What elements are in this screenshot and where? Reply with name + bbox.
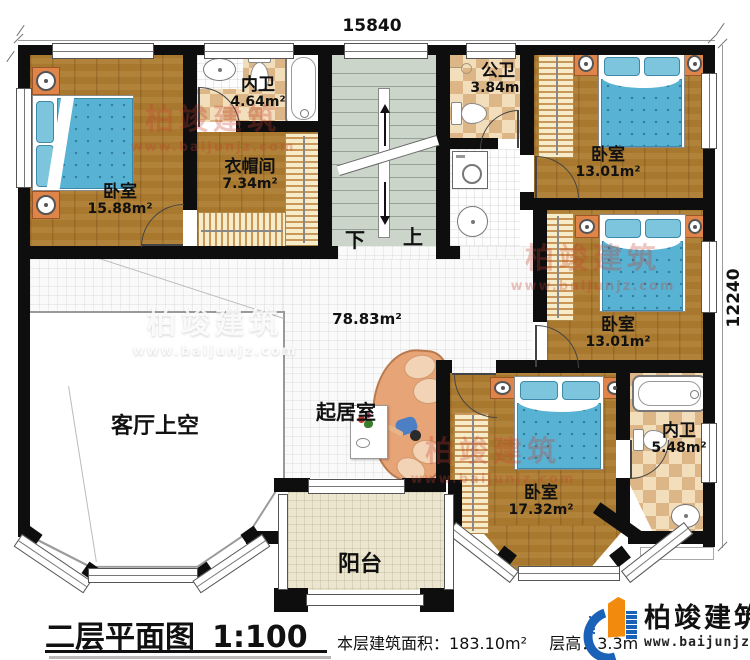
room-name: 卧室 xyxy=(576,316,660,335)
dimension-line-right xyxy=(722,45,723,548)
dimension-top-value: 15840 xyxy=(330,16,414,36)
pillow xyxy=(604,57,640,76)
wardrobe-rack xyxy=(538,50,574,158)
balcony-pillar xyxy=(274,478,310,492)
door-leaf xyxy=(452,373,496,375)
door-leaf xyxy=(630,440,632,478)
balcony-sliding-door xyxy=(308,479,405,494)
bathtub xyxy=(632,375,707,412)
living-void-label: 客厅上空 xyxy=(100,408,210,440)
room-label-bath1: 内卫 4.64m² xyxy=(222,76,294,111)
stair-arrow-up-icon xyxy=(380,104,390,113)
wall xyxy=(533,210,547,322)
nightstand xyxy=(32,191,60,219)
person-head xyxy=(410,430,421,441)
bed xyxy=(514,376,604,470)
window xyxy=(52,43,154,59)
dimension-tick xyxy=(708,34,718,44)
logo-orange-tower xyxy=(608,596,625,637)
brand-text: 柏竣建筑 www.baijunjz.com xyxy=(644,596,750,650)
door-leaf xyxy=(198,87,200,127)
blanket xyxy=(517,403,601,469)
room-area: 7.34m² xyxy=(205,177,295,193)
balcony-railing xyxy=(278,494,288,590)
wall-wedge xyxy=(609,546,631,568)
room-area: 4.64m² xyxy=(222,95,294,111)
floor-plan: 柏竣建筑 www.baijunjz.com xyxy=(0,0,750,660)
nightstand xyxy=(32,67,60,95)
pillow xyxy=(605,219,641,238)
wall xyxy=(436,246,460,259)
laundry-sink xyxy=(457,206,488,237)
door-leaf xyxy=(535,156,537,198)
blanket xyxy=(601,79,682,147)
pillow xyxy=(520,381,558,400)
window xyxy=(204,43,294,59)
bay-window xyxy=(88,568,198,583)
bed xyxy=(32,95,134,191)
stair-arrow-stem xyxy=(384,182,386,216)
window xyxy=(344,43,428,59)
wall xyxy=(18,246,197,259)
stats-area-value: 183.10m² xyxy=(449,634,527,653)
room-label-public-bath: 公卫 3.84m² xyxy=(460,62,536,97)
corner-break-mark xyxy=(716,23,724,34)
room-label-bedroom2: 卧室 13.01m² xyxy=(566,146,650,181)
window xyxy=(701,241,717,313)
title-underline xyxy=(45,650,327,653)
room-name: 卧室 xyxy=(70,183,170,202)
stats-area-label: 本层建筑面积： xyxy=(337,634,449,653)
window xyxy=(701,73,717,149)
dimension-line-top xyxy=(18,40,715,41)
room-label-bedroom3: 卧室 13.01m² xyxy=(576,316,660,351)
stair-arrow-stem xyxy=(384,112,386,146)
room-name: 内卫 xyxy=(222,76,294,95)
title-block: 二层平面图 1:100 xyxy=(45,612,345,648)
blanket xyxy=(602,241,683,311)
balcony-railing xyxy=(306,594,424,606)
toilet xyxy=(451,100,489,127)
stairs-down-label: 下 xyxy=(340,224,370,253)
wall xyxy=(496,360,715,373)
wall xyxy=(520,198,715,210)
room-name: 内卫 xyxy=(648,422,710,441)
stair-arrow-down-icon xyxy=(380,216,390,225)
brand-name: 柏竣建筑 xyxy=(644,596,750,635)
room-name: 卧室 xyxy=(496,484,586,503)
balcony-pillar xyxy=(402,478,446,492)
logo-blue-tower xyxy=(626,611,637,639)
bay-window xyxy=(518,566,620,581)
stairs-up-label: 上 xyxy=(398,221,428,250)
door-leaf xyxy=(517,110,519,148)
bed xyxy=(598,52,685,148)
hall-area-label: 78.83m² xyxy=(322,310,412,328)
hall-floor xyxy=(460,246,533,259)
room-area: 13.01m² xyxy=(576,335,660,351)
dimension-right-value: 12240 xyxy=(724,256,744,340)
nightstand xyxy=(575,215,599,238)
room-label-bedroom4: 卧室 17.32m² xyxy=(496,484,586,519)
door-leaf xyxy=(141,244,183,246)
wardrobe-rack xyxy=(198,212,286,247)
window xyxy=(466,43,516,59)
pillow xyxy=(36,101,54,143)
pillow xyxy=(644,57,680,76)
pillow xyxy=(645,219,681,238)
room-label-cloakroom: 衣帽间 7.34m² xyxy=(205,158,295,193)
balcony-pillar xyxy=(420,588,454,612)
room-area: 15.88m² xyxy=(70,202,170,218)
washing-machine xyxy=(452,151,488,189)
balcony-railing xyxy=(444,494,454,590)
window xyxy=(16,88,32,188)
room-area: 17.32m² xyxy=(496,503,586,519)
bed xyxy=(599,214,686,312)
wall xyxy=(318,45,332,246)
wall xyxy=(436,373,450,480)
brand-logo-icon xyxy=(584,595,638,651)
wall xyxy=(183,45,197,210)
corner-break-mark xyxy=(6,51,14,62)
door-leaf xyxy=(535,325,537,367)
room-area: 13.01m² xyxy=(566,165,650,181)
title-underline-shadow xyxy=(49,656,331,659)
logo-dots xyxy=(588,615,596,635)
room-name: 卧室 xyxy=(566,146,650,165)
balcony-label: 阳台 xyxy=(328,546,392,578)
wall xyxy=(197,246,338,259)
brand-logo: 柏竣建筑 www.baijunjz.com xyxy=(584,592,748,654)
pillow xyxy=(562,381,600,400)
wall xyxy=(436,360,452,373)
room-label-bath2: 内卫 5.48m² xyxy=(648,422,710,457)
room-label-bedroom1: 卧室 15.88m² xyxy=(70,183,170,218)
sitting-room-label: 起居室 xyxy=(308,396,384,425)
wall xyxy=(616,373,630,440)
room-name: 衣帽间 xyxy=(205,158,295,177)
table-dish xyxy=(356,438,370,448)
room-area: 3.84m² xyxy=(460,81,536,97)
balcony-pillar xyxy=(274,588,308,612)
room-name: 公卫 xyxy=(460,62,536,81)
brand-url: www.baijunjz.com xyxy=(644,635,750,650)
room-area: 5.48m² xyxy=(648,441,710,457)
